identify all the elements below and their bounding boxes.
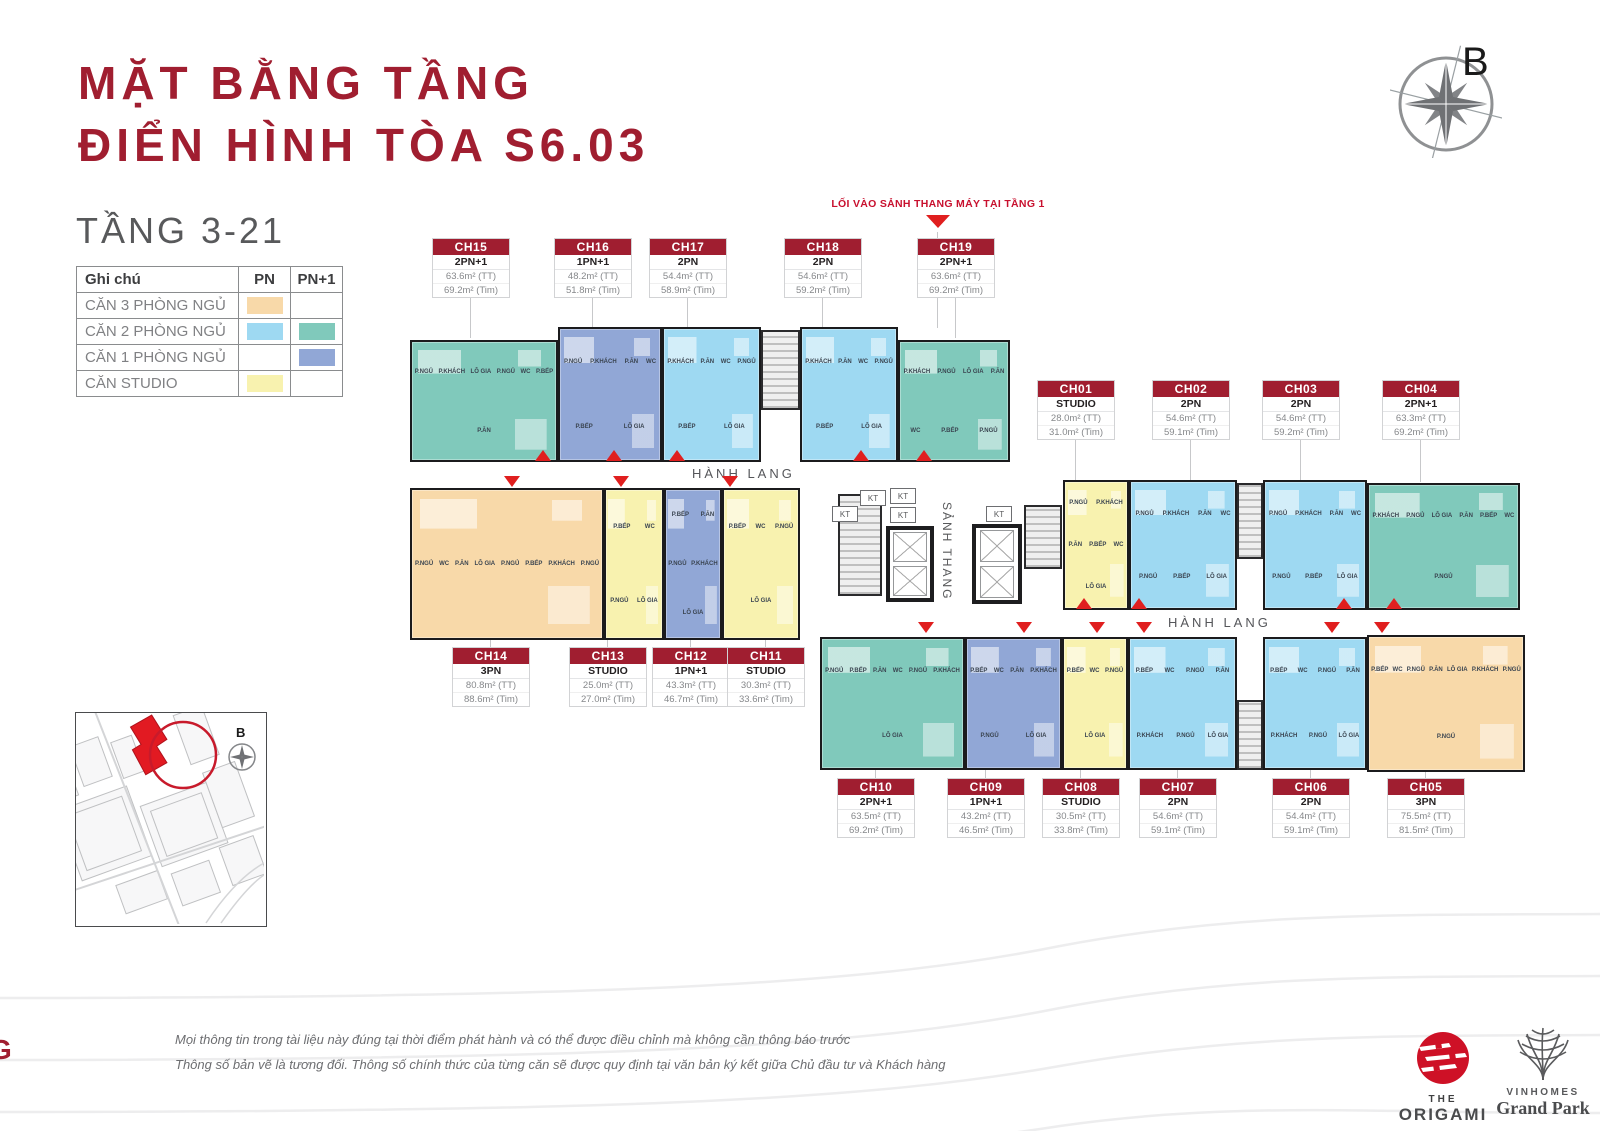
room-label: P.NGỦ bbox=[1405, 667, 1427, 673]
unit-CH01: P.NGỦP.KHÁCHP.ĂNP.BẾPWCLÔ GIA bbox=[1063, 480, 1129, 610]
corridor-arrow-down-icon bbox=[1136, 622, 1152, 633]
room-label: P.ĂN bbox=[1214, 668, 1232, 674]
site-map-drawing: B bbox=[76, 713, 264, 924]
room-label: P.ĂN bbox=[1067, 542, 1085, 548]
legend-table: Ghi chú PN PN+1 CĂN 3 PHÒNG NGỦ CĂN 2 PH… bbox=[76, 266, 343, 397]
unit-label-CH14: CH14 3PN 80.8m² (TT) 88.6m² (Tim) bbox=[452, 647, 530, 707]
room-label: P.NGỦ bbox=[979, 733, 1001, 739]
room-label: P.KHÁCH bbox=[1028, 668, 1059, 674]
leader-line bbox=[765, 640, 766, 647]
room-label: P.BẾP bbox=[523, 561, 544, 567]
room-label: P.ĂN bbox=[475, 428, 493, 434]
room-label: WC bbox=[992, 668, 1006, 674]
elevator-cab bbox=[980, 530, 1015, 562]
room-label: WC bbox=[891, 668, 905, 674]
room-label: WC bbox=[643, 524, 657, 530]
unit-CH19: P.KHÁCHP.NGỦLÔ GIAP.ĂNWCP.BẾPP.NGỦ bbox=[898, 340, 1010, 462]
site-map-compass-icon bbox=[229, 744, 255, 770]
brochure-page: MẶT BẰNG TẦNG ĐIỂN HÌNH TÒA S6.03 TẦNG 3… bbox=[0, 0, 1600, 1131]
room-label: WC bbox=[1391, 667, 1405, 673]
room-label: P.BẾP bbox=[1065, 668, 1086, 674]
unit-label-CH11: CH11 STUDIO 30.3m² (TT) 33.6m² (Tim) bbox=[727, 647, 805, 707]
entry-note: LỐI VÀO SẢNH THANG MÁY TẠI TẦNG 1 bbox=[818, 198, 1058, 210]
room-label: P.NGỦ bbox=[666, 561, 688, 567]
swatch-1pn-plus bbox=[299, 349, 335, 366]
room-label: P.BẾP bbox=[1268, 668, 1289, 674]
page-title: MẶT BẰNG TẦNG ĐIỂN HÌNH TÒA S6.03 bbox=[78, 52, 649, 176]
legend-header-pn: PN bbox=[239, 267, 291, 293]
shaft-label: KT bbox=[890, 507, 916, 523]
unit-label-CH06: CH06 2PN 54.4m² (TT) 59.1m² (Tim) bbox=[1272, 778, 1350, 838]
site-map-north-label: B bbox=[236, 725, 245, 740]
corridor-arrow-down-icon bbox=[504, 476, 520, 487]
room-label: WC bbox=[856, 359, 870, 365]
room-label: P.ĂN bbox=[1008, 668, 1026, 674]
room-label: P.KHÁCH bbox=[1269, 733, 1300, 739]
unit-CH04: P.KHÁCHP.NGỦLÔ GIAP.ĂNP.BẾPWCP.NGỦ bbox=[1367, 483, 1520, 610]
page-title-line1: MẶT BẰNG TẦNG bbox=[78, 52, 649, 114]
corridor-arrow-up-icon bbox=[1131, 598, 1147, 609]
room-label: LÔ GIA bbox=[622, 424, 647, 430]
unit-label-CH02: CH02 2PN 54.6m² (TT) 59.1m² (Tim) bbox=[1152, 380, 1230, 440]
room-label: P.NGỦ bbox=[1103, 668, 1125, 674]
corridor-arrow-down-icon bbox=[1374, 622, 1390, 633]
corridor-arrow-up-icon bbox=[853, 450, 869, 461]
room-label: P.KHÁCH bbox=[689, 561, 720, 567]
floor-range: TẦNG 3-21 bbox=[76, 210, 285, 252]
room-label: P.ĂN bbox=[1457, 513, 1475, 519]
legend-row-2pn: CĂN 2 PHÒNG NGỦ bbox=[77, 319, 343, 345]
room-label: P.ĂN bbox=[699, 512, 717, 518]
room-label: P.NGỦ bbox=[413, 369, 435, 375]
unit-CH05: P.BẾPWCP.NGỦP.ĂNLÔ GIAP.KHÁCHP.NGỦP.NGỦ bbox=[1367, 635, 1525, 772]
room-label: WC bbox=[1502, 513, 1516, 519]
room-label: P.NGỦ bbox=[1184, 668, 1206, 674]
leader-line bbox=[985, 770, 986, 778]
room-label: P.BẾP bbox=[1171, 574, 1192, 580]
swatch-2pn bbox=[247, 323, 283, 340]
room-label: P.BẾP bbox=[1303, 574, 1324, 580]
core-staircase bbox=[1024, 505, 1062, 569]
room-label: P.BẾP bbox=[814, 424, 835, 430]
swatch-2pn-plus bbox=[299, 323, 335, 340]
corridor-arrow-up-icon bbox=[669, 450, 685, 461]
corridor-arrow-up-icon bbox=[1386, 598, 1402, 609]
unit-CH12: P.BẾPP.ĂNP.NGỦP.KHÁCHLÔ GIA bbox=[664, 488, 722, 640]
room-label: P.NGỦ bbox=[935, 369, 957, 375]
page-title-line2: ĐIỂN HÌNH TÒA S6.03 bbox=[78, 114, 649, 176]
room-label: LÔ GIA bbox=[1084, 584, 1109, 590]
swatch-3pn bbox=[247, 297, 283, 314]
leader-line bbox=[1075, 438, 1076, 482]
unit-CH17: P.KHÁCHP.ĂNWCP.NGỦP.BẾPLÔ GIA bbox=[662, 327, 761, 462]
leader-line bbox=[1080, 770, 1081, 778]
corridor-label-right: HÀNH LANG bbox=[1168, 615, 1271, 630]
room-label: P.BẾP bbox=[574, 424, 595, 430]
room-label: LÔ GIA bbox=[1083, 733, 1108, 739]
unit-label-CH07: CH07 2PN 54.6m² (TT) 59.1m² (Tim) bbox=[1139, 778, 1217, 838]
elevator-bank bbox=[972, 524, 1022, 604]
room-label: P.NGỦ bbox=[1133, 511, 1155, 517]
legend-row-3pn: CĂN 3 PHÒNG NGỦ bbox=[77, 293, 343, 319]
room-label: LÔ GIA bbox=[722, 424, 747, 430]
disclaimer-line2: Thông số bản vẽ là tương đối. Thông số c… bbox=[175, 1057, 946, 1072]
room-label: P.NGỦ bbox=[1435, 734, 1457, 740]
room-label: P.NGỦ bbox=[1174, 733, 1196, 739]
corridor-arrow-up-icon bbox=[606, 450, 622, 461]
room-label: LÔ GIA bbox=[1204, 574, 1229, 580]
room-label: P.BẾP bbox=[1478, 513, 1499, 519]
room-label: LÔ GIA bbox=[635, 598, 660, 604]
lobby-label: SẢNH THANG bbox=[940, 502, 954, 602]
room-label: P.ĂN bbox=[871, 668, 889, 674]
room-label: P.ĂN bbox=[1328, 511, 1346, 517]
room-label: P.BẾP bbox=[1369, 667, 1390, 673]
room-label: P.NGỦ bbox=[579, 561, 601, 567]
room-label: P.NGỦ bbox=[562, 359, 584, 365]
unit-label-CH10: CH10 2PN+1 63.5m² (TT) 69.2m² (Tim) bbox=[837, 778, 915, 838]
leader-line bbox=[1300, 438, 1301, 482]
room-label: P.KHÁCH bbox=[1371, 513, 1402, 519]
corridor-label-left: HÀNH LANG bbox=[692, 466, 795, 481]
origami-logo-icon bbox=[1415, 1030, 1471, 1086]
corridor-arrow-down-icon bbox=[613, 476, 629, 487]
room-label: P.KHÁCH bbox=[1293, 511, 1324, 517]
leader-line bbox=[955, 296, 956, 338]
unit-CH18: P.KHÁCHP.ĂNWCP.NGỦP.BẾPLÔ GIA bbox=[800, 327, 898, 462]
room-label: P.ĂN bbox=[699, 359, 717, 365]
room-label: LÔ GIA bbox=[469, 369, 494, 375]
room-label: P.KHÁCH bbox=[902, 369, 933, 375]
room-label: P.NGỦ bbox=[1307, 733, 1329, 739]
unit-label-CH04: CH04 2PN+1 63.3m² (TT) 69.2m² (Tim) bbox=[1382, 380, 1460, 440]
room-label: P.NGỦ bbox=[495, 369, 517, 375]
room-label: P.NGỦ bbox=[1316, 668, 1338, 674]
unit-CH13: P.BẾPWCP.NGỦLÔ GIA bbox=[604, 488, 664, 640]
unit-CH16: P.NGỦP.KHÁCHP.ĂNWCP.BẾPLÔ GIA bbox=[558, 327, 662, 462]
room-label: WC bbox=[1111, 542, 1125, 548]
vinhomes-logo-icon bbox=[1513, 1026, 1573, 1080]
origami-logo: THE ORIGAMI bbox=[1398, 1030, 1488, 1125]
room-label: LÔ GIA bbox=[681, 610, 706, 616]
unit-label-CH08: CH08 STUDIO 30.5m² (TT) 33.8m² (Tim) bbox=[1042, 778, 1120, 838]
room-label: P.ĂN bbox=[836, 359, 854, 365]
room-label: P.BẾP bbox=[848, 668, 869, 674]
room-label: P.BẾP bbox=[1134, 668, 1155, 674]
clipped-page-letter: G bbox=[0, 1034, 12, 1066]
room-label: P.BẾP bbox=[676, 424, 697, 430]
room-label: P.KHÁCH bbox=[436, 369, 467, 375]
room-label: P.ĂN bbox=[1344, 668, 1362, 674]
origami-logo-name: ORIGAMI bbox=[1398, 1105, 1488, 1125]
room-label: LÔ GIA bbox=[1337, 733, 1362, 739]
leader-line bbox=[490, 640, 491, 647]
room-label: P.NGỦ bbox=[1270, 574, 1292, 580]
room-label: P.NGỦ bbox=[823, 668, 845, 674]
unit-CH11: P.BẾPWCP.NGỦLÔ GIA bbox=[722, 488, 800, 640]
shaft-label: KT bbox=[832, 506, 858, 522]
room-label: P.BẾP bbox=[670, 512, 691, 518]
room-label: P.BẾP bbox=[727, 524, 748, 530]
staircase bbox=[761, 330, 800, 410]
unit-label-CH13: CH13 STUDIO 25.0m² (TT) 27.0m² (Tim) bbox=[569, 647, 647, 707]
room-label: WC bbox=[437, 561, 451, 567]
unit-CH15: P.NGỦP.KHÁCHLÔ GIAP.NGỦWCP.BẾPP.ĂN bbox=[410, 340, 558, 462]
leader-line bbox=[607, 640, 608, 647]
unit-CH08: P.BẾPWCP.NGỦLÔ GIA bbox=[1062, 637, 1128, 770]
unit-label-CH03: CH03 2PN 54.6m² (TT) 59.2m² (Tim) bbox=[1262, 380, 1340, 440]
unit-label-CH17: CH17 2PN 54.4m² (TT) 58.9m² (Tim) bbox=[649, 238, 727, 298]
unit-label-CH01: CH01 STUDIO 28.0m² (TT) 31.0m² (Tim) bbox=[1037, 380, 1115, 440]
room-label: P.NGỦ bbox=[735, 359, 757, 365]
room-label: LÔ GIA bbox=[880, 733, 905, 739]
corridor-arrow-up-icon bbox=[1076, 598, 1092, 609]
room-label: P.NGỦ bbox=[1501, 667, 1523, 673]
room-label: WC bbox=[1162, 668, 1176, 674]
room-label: WC bbox=[1219, 511, 1233, 517]
room-label: LÔ GIA bbox=[1430, 513, 1455, 519]
room-label: P.NGỦ bbox=[499, 561, 521, 567]
room-label: WC bbox=[1349, 511, 1363, 517]
room-label: P.BẾP bbox=[939, 428, 960, 434]
room-label: WC bbox=[518, 369, 532, 375]
unit-CH02: P.NGỦP.KHÁCHP.ĂNWCP.NGỦP.BẾPLÔ GIA bbox=[1129, 480, 1237, 610]
leader-line bbox=[875, 770, 876, 778]
room-label: P.ĂN bbox=[453, 561, 471, 567]
room-label: P.KHÁCH bbox=[546, 561, 577, 567]
room-label: P.ĂN bbox=[623, 359, 641, 365]
room-label: WC bbox=[644, 359, 658, 365]
room-label: P.NGỦ bbox=[977, 428, 999, 434]
disclaimer-line1: Mọi thông tin trong tài liệu này đúng tạ… bbox=[175, 1032, 850, 1047]
unit-label-CH05: CH05 3PN 75.5m² (TT) 81.5m² (Tim) bbox=[1387, 778, 1465, 838]
room-label: WC bbox=[753, 524, 767, 530]
room-label: WC bbox=[1296, 668, 1310, 674]
leader-line bbox=[822, 296, 823, 330]
leader-line bbox=[1310, 770, 1311, 778]
room-label: P.NGỦ bbox=[1137, 574, 1159, 580]
room-label: P.NGỦ bbox=[1432, 574, 1454, 580]
room-label: LÔ GIA bbox=[1445, 667, 1470, 673]
room-label: P.NGỦ bbox=[608, 598, 630, 604]
unit-CH03: P.NGỦP.KHÁCHP.ĂNWCP.NGỦP.BẾPLÔ GIA bbox=[1263, 480, 1367, 610]
unit-label-CH09: CH09 1PN+1 43.2m² (TT) 46.5m² (Tim) bbox=[947, 778, 1025, 838]
room-label: P.KHÁCH bbox=[1094, 500, 1125, 506]
room-label: P.KHÁCH bbox=[1161, 511, 1192, 517]
corridor-arrow-down-icon bbox=[1016, 622, 1032, 633]
room-label: LÔ GIA bbox=[1206, 733, 1231, 739]
vinhomes-logo-name: Grand Park bbox=[1488, 1098, 1598, 1119]
leader-line bbox=[690, 640, 691, 647]
room-label: LÔ GIA bbox=[859, 424, 884, 430]
origami-logo-the: THE bbox=[1398, 1094, 1488, 1105]
unit-CH14: P.NGỦWCP.ĂNLÔ GIAP.NGỦP.BẾPP.KHÁCHP.NGỦ bbox=[410, 488, 604, 640]
unit-label-CH19: CH19 2PN+1 63.6m² (TT) 69.2m² (Tim) bbox=[917, 238, 995, 298]
room-label: P.BẾP bbox=[1087, 542, 1108, 548]
unit-label-CH12: CH12 1PN+1 43.3m² (TT) 46.7m² (Tim) bbox=[652, 647, 730, 707]
room-label: WC bbox=[908, 428, 922, 434]
vinhomes-logo: VINHOMES Grand Park bbox=[1488, 1026, 1598, 1119]
unit-label-CH18: CH18 2PN 54.6m² (TT) 59.2m² (Tim) bbox=[784, 238, 862, 298]
unit-CH07: P.BẾPWCP.NGỦP.ĂNP.KHÁCHP.NGỦLÔ GIA bbox=[1128, 637, 1237, 770]
room-label: LÔ GIA bbox=[1335, 574, 1360, 580]
room-label: LÔ GIA bbox=[749, 598, 774, 604]
elevator-cab bbox=[893, 566, 926, 597]
room-label: P.KHÁCH bbox=[665, 359, 696, 365]
corridor-arrow-up-icon bbox=[535, 450, 551, 461]
legend-row-studio: CĂN STUDIO bbox=[77, 371, 343, 397]
shaft-label: KT bbox=[860, 490, 886, 506]
room-label: P.NGỦ bbox=[873, 359, 895, 365]
staircase bbox=[1237, 700, 1263, 770]
room-label: WC bbox=[1087, 668, 1101, 674]
unit-label-CH15: CH15 2PN+1 63.6m² (TT) 69.2m² (Tim) bbox=[432, 238, 510, 298]
room-label: P.NGỦ bbox=[1404, 513, 1426, 519]
room-label: P.NGỦ bbox=[1267, 511, 1289, 517]
elevator-cab bbox=[893, 532, 926, 563]
room-label: P.KHÁCH bbox=[1470, 667, 1501, 673]
room-label: LÔ GIA bbox=[1024, 733, 1049, 739]
leader-line bbox=[1177, 770, 1178, 778]
room-label: P.BẾP bbox=[534, 369, 555, 375]
vinhomes-logo-top: VINHOMES bbox=[1488, 1087, 1598, 1098]
corridor-arrow-up-icon bbox=[916, 450, 932, 461]
staircase bbox=[1237, 483, 1263, 559]
swatch-studio bbox=[247, 375, 283, 392]
elevator-cab bbox=[980, 566, 1015, 598]
room-label: WC bbox=[719, 359, 733, 365]
room-label: P.NGỦ bbox=[907, 668, 929, 674]
unit-CH09: P.BẾPWCP.ĂNP.KHÁCHP.NGỦLÔ GIA bbox=[965, 637, 1062, 770]
legend-header-note: Ghi chú bbox=[77, 267, 239, 293]
room-label: P.ĂN bbox=[989, 369, 1007, 375]
room-label: P.KHÁCH bbox=[803, 359, 834, 365]
room-label: P.BẾP bbox=[968, 668, 989, 674]
leader-line bbox=[592, 296, 593, 330]
corridor-arrow-down-icon bbox=[1089, 622, 1105, 633]
compass-north-label: B bbox=[1462, 40, 1489, 85]
unit-CH06: P.BẾPWCP.NGỦP.ĂNP.KHÁCHP.NGỦLÔ GIA bbox=[1263, 637, 1367, 770]
leader-line bbox=[1190, 438, 1191, 482]
leader-line bbox=[470, 296, 471, 338]
room-label: P.BẾP bbox=[611, 524, 632, 530]
site-location-map: B bbox=[75, 712, 267, 927]
entry-arrow-icon bbox=[926, 215, 950, 228]
corridor-arrow-down-icon bbox=[722, 476, 738, 487]
legend-row-1pn: CĂN 1 PHÒNG NGỦ bbox=[77, 345, 343, 371]
room-label: P.ĂN bbox=[1196, 511, 1214, 517]
shaft-label: KT bbox=[890, 488, 916, 504]
unit-label-CH16: CH16 1PN+1 48.2m² (TT) 51.8m² (Tim) bbox=[554, 238, 632, 298]
room-label: LÔ GIA bbox=[961, 369, 986, 375]
room-label: P.NGỦ bbox=[1067, 500, 1089, 506]
room-label: P.KHÁCH bbox=[588, 359, 619, 365]
elevator-bank bbox=[886, 526, 934, 602]
corridor-arrow-up-icon bbox=[1336, 598, 1352, 609]
corridor-arrow-down-icon bbox=[918, 622, 934, 633]
leader-line bbox=[1420, 438, 1421, 482]
room-label: P.NGỦ bbox=[413, 561, 435, 567]
shaft-label: KT bbox=[986, 506, 1012, 522]
room-label: P.KHÁCH bbox=[931, 668, 962, 674]
room-label: P.ĂN bbox=[1427, 667, 1445, 673]
unit-CH10: P.NGỦP.BẾPP.ĂNWCP.NGỦP.KHÁCHLÔ GIA bbox=[820, 637, 965, 770]
room-label: P.NGỦ bbox=[773, 524, 795, 530]
legend-header-row: Ghi chú PN PN+1 bbox=[77, 267, 343, 293]
room-label: LÔ GIA bbox=[472, 561, 497, 567]
leader-line bbox=[687, 296, 688, 330]
corridor-arrow-down-icon bbox=[1324, 622, 1340, 633]
legend-header-pn-plus: PN+1 bbox=[291, 267, 343, 293]
room-label: P.KHÁCH bbox=[1135, 733, 1166, 739]
